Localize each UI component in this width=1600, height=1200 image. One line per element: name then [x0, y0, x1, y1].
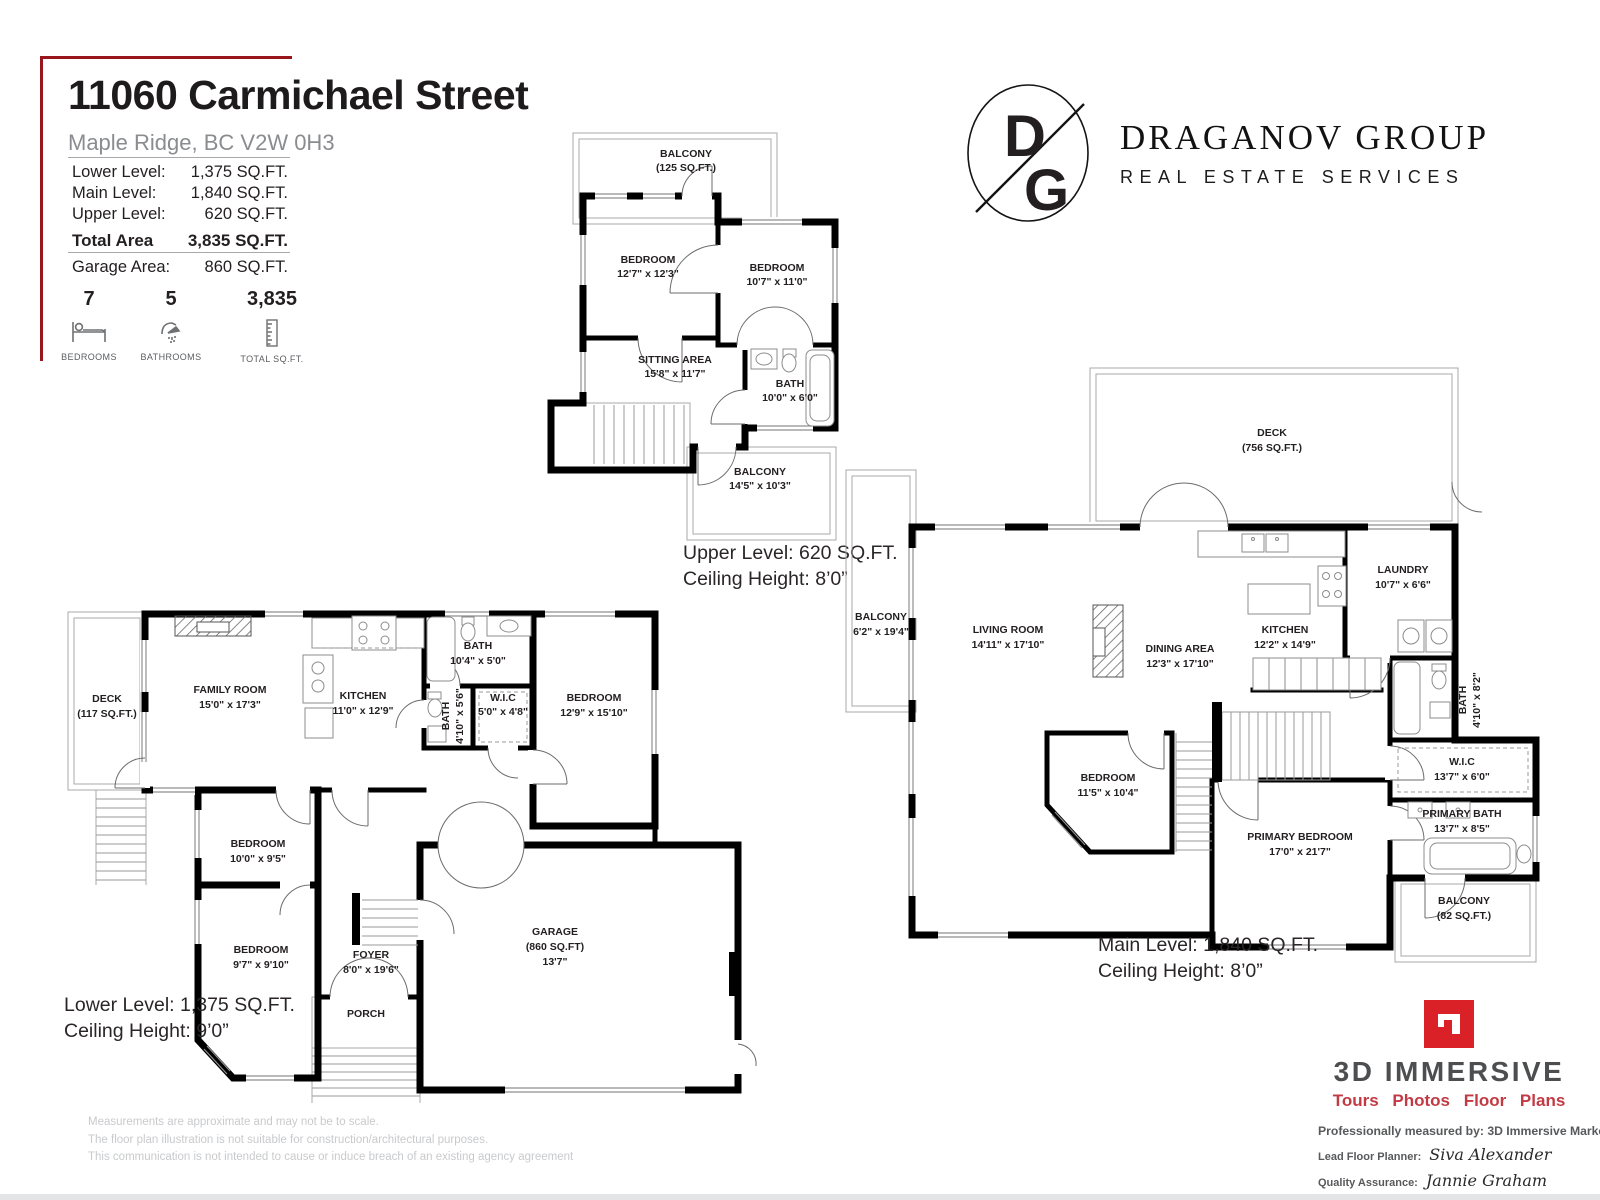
upper-stairs [594, 405, 684, 464]
room-label: BATH [464, 640, 492, 652]
room-dims: 10'4" x 5'0" [450, 655, 506, 667]
page-title: 11060 Carmichael Street [68, 72, 528, 119]
upper-openings [578, 191, 840, 452]
room-dims: (117 SQ.FT.) [77, 708, 137, 720]
stair-newel [1212, 702, 1222, 782]
bathrooms-count: 5 [140, 288, 202, 311]
room-dims: 15'8" x 11'7" [644, 368, 705, 380]
stat-bedrooms: 7 BEDROOMS [58, 288, 120, 362]
room-label: DECK [92, 693, 122, 705]
room-dims: 11'0" x 12'9" [332, 705, 393, 717]
area-row-main: Main Level: 1,840 SQ.FT. [72, 183, 288, 204]
measured-by-line: Professionally measured by: 3D Immersive… [1318, 1124, 1580, 1138]
room-dims: 12'7" x 12'3" [617, 268, 679, 280]
room-label: DINING AREA [1145, 643, 1214, 655]
room-dims: 13'7" x 6'0" [1434, 771, 1490, 783]
room-label: BATH [440, 702, 452, 730]
stair-newel [352, 893, 360, 945]
room-dims: 12'2" x 14'9" [1254, 639, 1316, 651]
room-label: BEDROOM [234, 944, 289, 956]
bathrooms-caption: BATHROOMS [140, 352, 202, 362]
room-dims: (82 SQ.FT.) [1437, 910, 1491, 922]
room-label: BATH [1457, 686, 1469, 714]
room-label: W.I.C [490, 692, 516, 704]
area-row-lower: Lower Level: 1,375 SQ.FT. [72, 162, 288, 183]
divider [68, 157, 290, 158]
3d-immersive-name: 3D IMMERSIVE [1318, 1056, 1580, 1088]
accent-bracket-left [40, 56, 43, 361]
lead-floor-planner-row: Lead Floor Planner: Siva Alexander [1318, 1145, 1580, 1164]
total-sqft-count: 3,835 [232, 288, 312, 311]
room-dims: 9'7" x 9'10" [233, 959, 289, 971]
bed-icon [58, 319, 120, 350]
room-dims: 10'0" x 9'5" [230, 853, 286, 865]
area-row-total: Total Area 3,835 SQ.FT. [72, 229, 288, 253]
room-label: W.I.C [1449, 756, 1475, 768]
fireplace [1093, 605, 1123, 677]
area-label: Main Level: [72, 183, 156, 204]
ruler-icon [232, 319, 312, 352]
monogram-g: G [1024, 158, 1069, 223]
main-caption-area: Main Level: 1,840 SQ.FT. [1098, 932, 1318, 958]
room-label: BEDROOM [621, 254, 676, 266]
main-level-caption: Main Level: 1,840 SQ.FT. Ceiling Height:… [1098, 932, 1318, 984]
floor-plan-page: 11060 Carmichael Street Maple Ridge, BC … [0, 0, 1600, 1200]
total-sqft-caption: TOTAL SQ.FT. [232, 354, 312, 364]
main-caption-ceiling: Ceiling Height: 8’0” [1098, 958, 1318, 984]
room-dims: 6'2" x 19'4" [853, 626, 909, 638]
stat-total-sqft: 3,835 TOTAL SQ.FT. [232, 288, 312, 364]
lower-level-plan: DECK (117 SQ.FT.) FAMILY ROOM 15'0" x 17… [60, 585, 760, 1145]
area-summary: Lower Level: 1,375 SQ.FT. Main Level: 1,… [72, 162, 288, 253]
planner-signature: Siva Alexander [1429, 1145, 1551, 1164]
lower-level-caption: Lower Level: 1,375 SQ.FT. Ceiling Height… [64, 992, 295, 1044]
room-label: BATH [776, 378, 804, 390]
room-label: BEDROOM [750, 262, 805, 274]
property-location: Maple Ridge, BC V2W 0H3 [68, 130, 335, 156]
room-dims: (756 SQ.FT.) [1242, 442, 1302, 454]
room-dims: 14'11" x 17'10" [972, 639, 1045, 651]
room-dims: 10'7" x 11'0" [746, 276, 807, 288]
area-value: 1,375 SQ.FT. [191, 162, 288, 183]
brand-name: DRAGANOV GROUP [1120, 118, 1489, 158]
room-label: SITTING AREA [638, 354, 712, 366]
bedrooms-caption: BEDROOMS [58, 352, 120, 362]
3d-immersive-tagline: Tours Photos Floor Plans [1318, 1091, 1580, 1111]
area-label: Lower Level: [72, 162, 166, 183]
area-value: 620 SQ.FT. [205, 204, 288, 225]
stat-bathrooms: 5 BATHROOMS [140, 288, 202, 362]
disclaimer-line: Measurements are approximate and may not… [88, 1114, 573, 1132]
room-label: PORCH [347, 1008, 385, 1020]
lower-caption-area: Lower Level: 1,375 SQ.FT. [64, 992, 295, 1018]
quality-assurance-row: Quality Assurance: Jannie Graham [1318, 1171, 1580, 1190]
disclaimer-line: The floor plan illustration is not suita… [88, 1132, 573, 1150]
room-dims: (125 SQ.FT.) [656, 162, 716, 174]
room-label: BALCONY [1438, 895, 1490, 907]
room-label: FOYER [353, 949, 390, 961]
area-label: Upper Level: [72, 204, 166, 225]
area-label: Garage Area: [72, 258, 170, 277]
room-dims: 13'7" [543, 956, 568, 968]
porch-stairs [312, 1056, 420, 1096]
main-windows [909, 525, 1537, 949]
room-dims: 4'10" x 5'6" [454, 688, 466, 744]
room-dims: 8'0" x 19'6" [343, 964, 399, 976]
room-label: GARAGE [532, 926, 578, 938]
room-label: KITCHEN [340, 690, 387, 702]
room-label: BALCONY [660, 148, 712, 160]
room-dims: 11'5" x 10'4" [1077, 787, 1138, 799]
main-level-plan: DECK (756 SQ.FT.) BALCONY 6'2" x 19'4" L… [840, 360, 1550, 980]
room-dims: 12'9" x 15'10" [560, 707, 628, 719]
garage-area-row: Garage Area: 860 SQ.FT. [72, 258, 288, 277]
room-dims: 15'0" x 17'3" [199, 699, 261, 711]
main-openings [907, 522, 1541, 952]
room-dims: 10'0" x 6'0" [762, 392, 818, 404]
lower-fixtures [303, 616, 531, 742]
room-label: BALCONY [734, 466, 786, 478]
area-row-upper: Upper Level: 620 SQ.FT. [72, 204, 288, 225]
bedrooms-count: 7 [58, 288, 120, 311]
garage-wall-pier [729, 952, 738, 996]
area-label: Total Area [72, 229, 153, 253]
deck-stairs [96, 799, 146, 880]
brokerage-brand: D G DRAGANOV GROUP REAL ESTATE SERVICES [962, 78, 1489, 228]
room-label: BALCONY [855, 611, 907, 623]
room-dims: 10'7" x 6'6" [1375, 579, 1431, 591]
divider [68, 252, 290, 253]
room-area: (860 SQ.FT) [526, 941, 584, 953]
page-bottom-edge [0, 1194, 1600, 1200]
room-dims: 5'0" x 4'8" [478, 706, 528, 718]
room-label: DECK [1257, 427, 1287, 439]
disclaimer: Measurements are approximate and may not… [88, 1114, 573, 1167]
room-label: LAUNDRY [1378, 564, 1429, 576]
room-label: BEDROOM [1081, 772, 1136, 784]
lower-room-labels: DECK (117 SQ.FT.) FAMILY ROOM 15'0" x 17… [77, 640, 628, 1020]
room-dims: 14'5" x 10'3" [729, 480, 791, 492]
brand-text: DRAGANOV GROUP REAL ESTATE SERVICES [1120, 118, 1489, 188]
planner-label: Lead Floor Planner: [1318, 1151, 1421, 1163]
shower-icon [140, 319, 202, 350]
draganov-monogram-icon: D G [962, 78, 1094, 228]
room-label: KITCHEN [1262, 624, 1309, 636]
room-label: BEDROOM [231, 838, 286, 850]
room-dims: 4'10" x 8'2" [1471, 672, 1483, 728]
qa-label: Quality Assurance: [1318, 1177, 1418, 1189]
room-label: FAMILY ROOM [194, 684, 267, 696]
area-value: 3,835 SQ.FT. [188, 229, 288, 253]
room-dims: 13'7" x 8'5" [1434, 823, 1490, 835]
area-value: 1,840 SQ.FT. [191, 183, 288, 204]
room-label: PRIMARY BATH [1422, 808, 1501, 820]
room-dims: 17'0" x 21'7" [1269, 846, 1331, 858]
upper-level-plan: BALCONY (125 SQ.FT.) BEDROOM 12'7" x 12'… [540, 120, 860, 580]
room-dims: 12'3" x 17'10" [1146, 658, 1214, 670]
wic-closet-dashed [1398, 748, 1528, 792]
disclaimer-line: This communication is not intended to ca… [88, 1149, 573, 1167]
3d-immersive-logo-icon [1424, 1000, 1474, 1048]
area-value: 860 SQ.FT. [205, 258, 288, 277]
lower-caption-ceiling: Ceiling Height: 9’0” [64, 1018, 295, 1044]
room-label: BEDROOM [567, 692, 622, 704]
qa-signature: Jannie Graham [1426, 1171, 1547, 1190]
room-label: PRIMARY BEDROOM [1247, 831, 1353, 843]
measuring-company-credits: 3D IMMERSIVE Tours Photos Floor Plans Pr… [1318, 1000, 1580, 1190]
fireplace [175, 616, 251, 636]
foyer-stairs [362, 900, 418, 945]
brand-tagline: REAL ESTATE SERVICES [1120, 167, 1489, 188]
room-label: LIVING ROOM [973, 624, 1044, 636]
accent-bracket-top [40, 56, 292, 59]
